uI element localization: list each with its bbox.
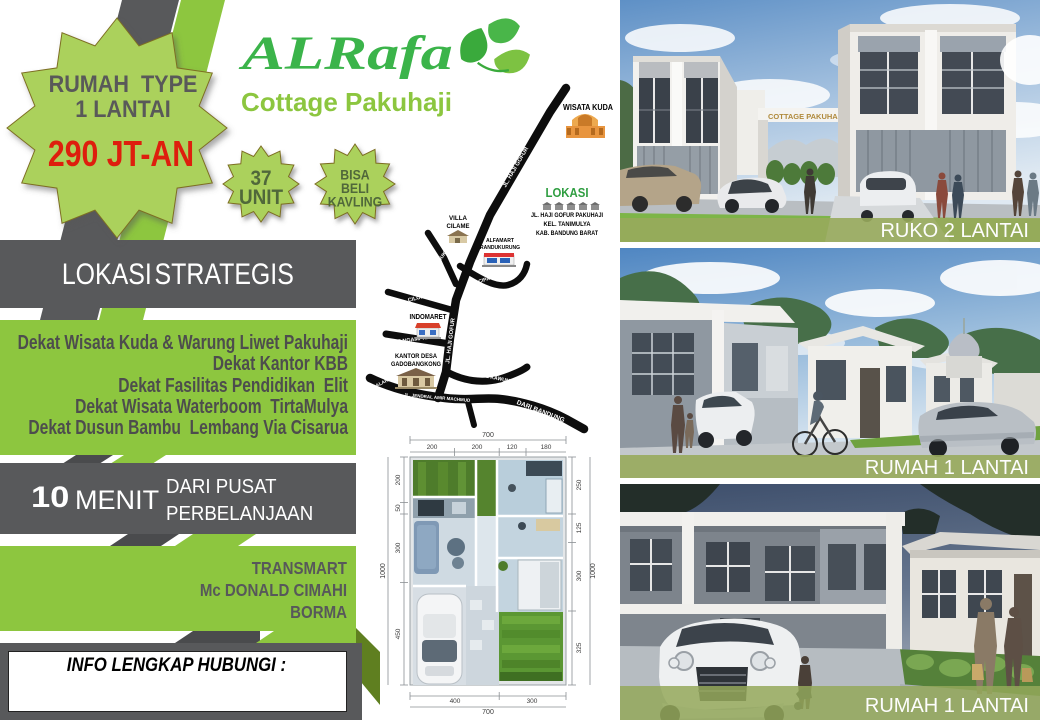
svg-text:700: 700 bbox=[482, 709, 494, 716]
svg-text:JL. HAJI GOFUR PAKUHAJI: JL. HAJI GOFUR PAKUHAJI bbox=[531, 212, 603, 219]
svg-text:UNIT: UNIT bbox=[239, 186, 283, 209]
svg-text:120: 120 bbox=[507, 444, 518, 451]
svg-text:1000: 1000 bbox=[380, 563, 387, 579]
svg-text:COTTAGE PAKUHAJI: COTTAGE PAKUHAJI bbox=[768, 112, 844, 121]
svg-text:KEL. TANIMULYA: KEL. TANIMULYA bbox=[544, 221, 591, 228]
svg-text:CILAME: CILAME bbox=[447, 223, 471, 230]
svg-text:200: 200 bbox=[427, 444, 438, 451]
svg-text:1000: 1000 bbox=[590, 563, 597, 579]
svg-text:VILLA: VILLA bbox=[449, 215, 467, 222]
svg-text:INDOMARET: INDOMARET bbox=[410, 312, 448, 321]
svg-text:JL. HAJI GOFUR: JL. HAJI GOFUR bbox=[502, 145, 530, 188]
svg-text:RUKO 2 LANTAI: RUKO 2 LANTAI bbox=[880, 220, 1029, 242]
svg-text:RUMAH 1 LANTAI: RUMAH 1 LANTAI bbox=[865, 695, 1029, 717]
svg-text:700: 700 bbox=[482, 432, 494, 439]
svg-text:180: 180 bbox=[541, 444, 552, 451]
svg-text:KANTOR DESA: KANTOR DESA bbox=[395, 353, 437, 360]
svg-text:125: 125 bbox=[576, 522, 583, 533]
svg-text:LOKASI: LOKASI bbox=[546, 186, 589, 200]
svg-text:50: 50 bbox=[395, 504, 402, 512]
svg-text:400: 400 bbox=[450, 698, 461, 705]
svg-text:WISATA KUDA: WISATA KUDA bbox=[563, 103, 613, 112]
svg-text:450: 450 bbox=[395, 628, 402, 639]
svg-text:RUMAH 1 LANTAI: RUMAH 1 LANTAI bbox=[865, 457, 1029, 478]
svg-text:300: 300 bbox=[576, 570, 583, 581]
svg-text:RANDUKURUNG: RANDUKURUNG bbox=[480, 245, 520, 251]
svg-text:GADOBANGKONG: GADOBANGKONG bbox=[391, 361, 441, 368]
svg-text:KAB. BANDUNG BARAT: KAB. BANDUNG BARAT bbox=[536, 230, 598, 237]
svg-text:325: 325 bbox=[576, 642, 583, 653]
svg-text:300: 300 bbox=[395, 542, 402, 553]
svg-text:200: 200 bbox=[395, 474, 402, 485]
svg-text:200: 200 bbox=[472, 444, 483, 451]
svg-text:ALFAMART: ALFAMART bbox=[486, 238, 515, 244]
svg-text:250: 250 bbox=[576, 479, 583, 490]
svg-text:300: 300 bbox=[527, 698, 538, 705]
